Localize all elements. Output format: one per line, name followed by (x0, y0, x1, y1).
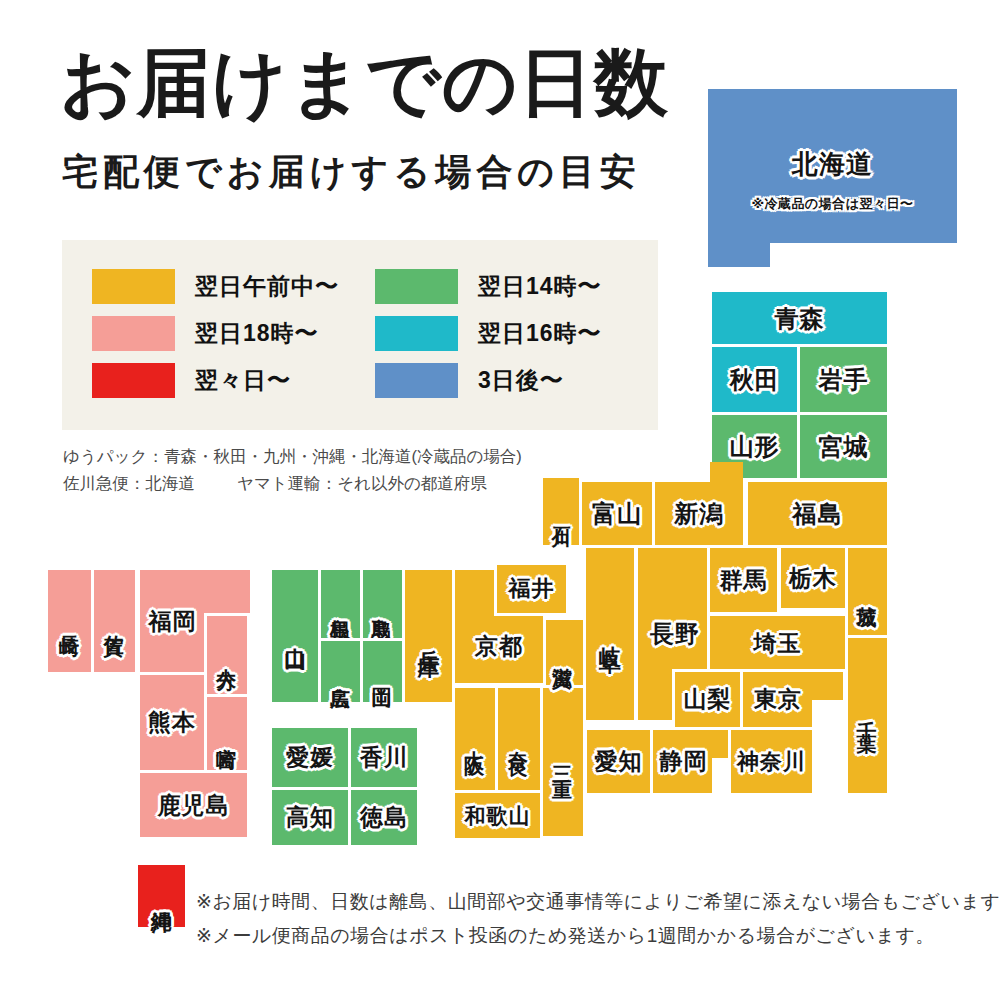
map-block-hokkaido-tab (708, 243, 770, 267)
map-block-hokkaido: 北海道※冷蔵品の場合は翌々日〜 (708, 89, 957, 243)
map-block-oita: 大分 (207, 616, 247, 694)
map-block-ishikawa: 石川 (543, 478, 579, 545)
map-block-kochi: 高知 (272, 790, 348, 845)
footer-note-1: ※お届け時間、日数は離島、山間部や交通事情等によりご希望に添えない場合もございま… (196, 885, 1000, 919)
map-block-toyama: 富山 (582, 482, 652, 545)
map-block-wakayama: 和歌山 (455, 793, 540, 838)
map-block-tottori: 鳥取 (363, 570, 402, 638)
map-block-suruga-bay (712, 758, 730, 794)
map-block-hokkaido-note: ※冷蔵品の場合は翌々日〜 (751, 195, 913, 213)
map-block-fukushima: 福島 (748, 482, 887, 545)
map-block-miyazaki: 宮崎 (207, 697, 247, 770)
footer-notes: ※お届け時間、日数は離島、山間部や交通事情等によりご希望に添えない場合もございま… (196, 885, 1000, 953)
map-block-aichi: 愛知 (587, 730, 650, 793)
map-block-yamanashi: 山梨 (675, 672, 740, 727)
map-block-ibaraki: 茨城 (848, 548, 887, 635)
map-block-chiba: 千葉 (848, 638, 887, 793)
footer-note-2: ※メール便商品の場合はポスト投函のため発送から1週間かかる場合がございます。 (196, 919, 1000, 953)
map-block-niigata-tab (710, 462, 743, 483)
map-block-okinawa: 沖縄 (138, 865, 185, 927)
map-block-nagasaki: 長崎 (48, 570, 92, 672)
map-block-mie: 三重 (543, 688, 583, 836)
map-block-saga: 佐賀 (94, 570, 135, 672)
map-block-tokyo-bay (812, 700, 844, 728)
map-block-hyogo: 兵庫 (405, 570, 452, 702)
map-block-yamaguchi: 山口 (272, 570, 318, 702)
map-block-kanagawa: 神奈川 (731, 730, 812, 793)
map-block-niigata: 新潟 (655, 482, 743, 545)
japan-map: 北海道※冷蔵品の場合は翌々日〜青森秋田岩手山形宮城新潟福島石川富山岐阜長野群馬栃… (0, 0, 1000, 1000)
map-block-kagawa: 香川 (351, 728, 417, 787)
map-block-hiroshima: 広島 (321, 641, 361, 702)
map-block-kumamoto: 熊本 (140, 675, 204, 770)
map-block-akita: 秋田 (712, 347, 797, 412)
map-block-miyagi: 宮城 (800, 415, 887, 478)
map-block-aomori: 青森 (712, 292, 887, 345)
map-block-tochigi: 栃木 (781, 548, 845, 608)
map-block-saitama: 埼玉 (710, 616, 845, 670)
map-block-fukui: 福井 (497, 565, 566, 613)
map-block-tokushima: 徳島 (351, 790, 417, 845)
map-block-iwate: 岩手 (800, 347, 887, 412)
map-block-shimane: 島根 (321, 570, 361, 638)
map-block-ehime: 愛媛 (272, 728, 348, 787)
map-block-gifu: 岐阜 (586, 548, 634, 720)
map-block-kagoshima: 鹿児島 (140, 773, 247, 837)
map-block-nara: 奈良 (498, 688, 540, 790)
map-block-shiga: 滋賀 (543, 620, 583, 685)
map-block-okayama: 岡山 (363, 641, 402, 702)
map-block-gunma: 群馬 (710, 548, 777, 612)
map-block-osaka: 大阪 (455, 688, 495, 790)
